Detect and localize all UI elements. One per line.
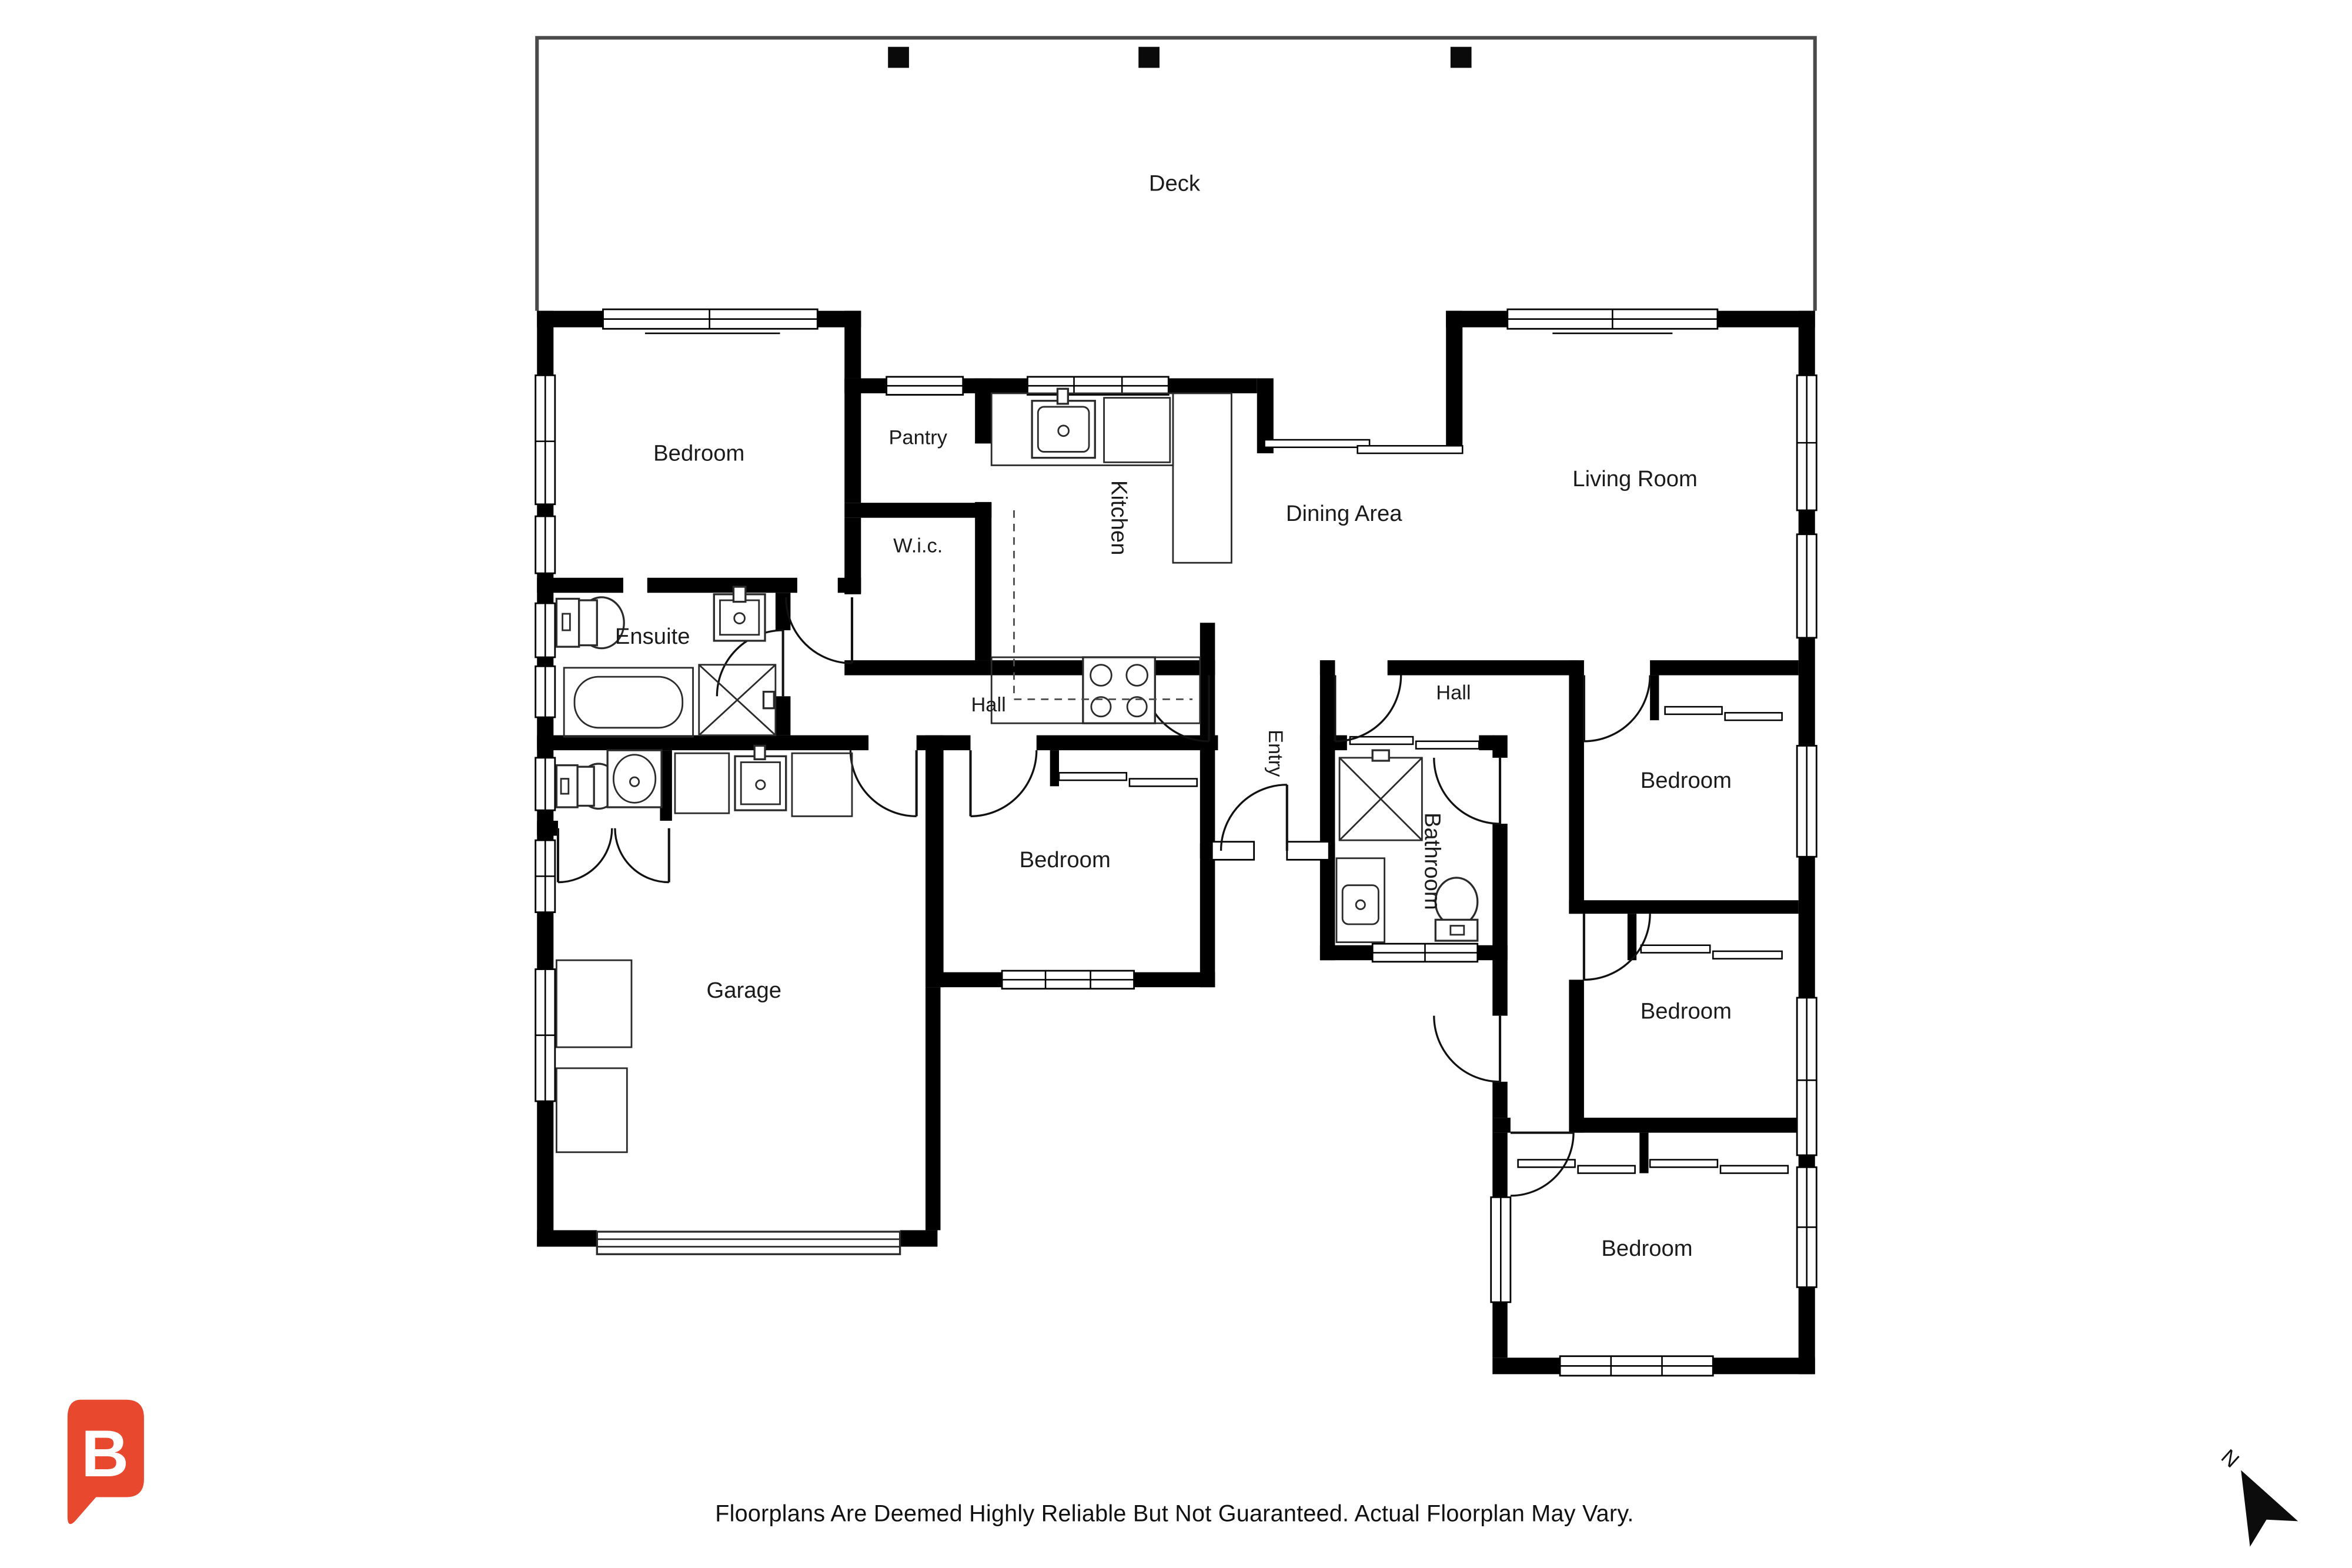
room-label-deck: Deck: [1149, 171, 1201, 196]
wall-segment: [1320, 735, 1347, 751]
deck-post: [888, 47, 909, 68]
deck-post: [1451, 47, 1472, 68]
wall-segment: [900, 1230, 938, 1246]
closet-door-panel: [1713, 951, 1782, 959]
room-label-pantry: Pantry: [888, 427, 947, 449]
closet-door-panel: [1720, 1166, 1788, 1174]
pocket-door-panel: [1350, 737, 1413, 744]
wall-segment: [537, 912, 553, 969]
wall-segment: [926, 987, 941, 1230]
wall-segment: [1492, 1358, 1560, 1374]
wall-segment: [844, 660, 1215, 676]
wall-segment: [844, 311, 861, 379]
room-label-bedroom-right-bottom: Bedroom: [1601, 1236, 1692, 1261]
wall-segment: [1799, 1155, 1815, 1167]
sliding-door-panel: [1358, 446, 1463, 453]
wall-segment: [844, 518, 861, 594]
brand-logo-icon: B: [68, 1400, 144, 1524]
wall-segment: [1492, 1082, 1508, 1118]
window: [1287, 842, 1329, 860]
wall-segment: [537, 504, 553, 516]
shower-head: [763, 692, 774, 708]
garage-fixtures: [556, 960, 632, 1152]
logo-letter: B: [81, 1416, 129, 1490]
deck-post: [1138, 47, 1160, 68]
closet-door-panel: [1725, 713, 1782, 720]
bathtub: [564, 668, 693, 737]
wall-segment: [1650, 676, 1659, 721]
wall-segment: [1200, 735, 1215, 988]
door-swing: [850, 750, 916, 816]
ensuite-fixtures: [556, 587, 775, 737]
wall-segment: [1492, 824, 1508, 1016]
room-label-kitchen: Kitchen: [1106, 480, 1131, 556]
wall-segment: [1628, 914, 1636, 960]
garage-storage: [556, 960, 632, 1047]
wall-segment: [1569, 660, 1584, 914]
wall-segment: [1388, 660, 1578, 676]
wall-segment: [1650, 660, 1799, 676]
door-swing: [1434, 1016, 1500, 1082]
wall-segment: [1639, 1133, 1648, 1174]
wall-segment: [1492, 735, 1508, 758]
wall-segment: [1573, 1118, 1799, 1133]
room-label-dining-area: Dining Area: [1286, 501, 1402, 526]
sink-faucet: [733, 587, 745, 602]
wall-segment: [926, 735, 944, 988]
window: [1212, 842, 1254, 860]
room-label-wic: W.i.c.: [893, 534, 943, 557]
wall-segment: [537, 1101, 553, 1246]
garage-door-panel: [597, 1232, 900, 1254]
wall-segment: [1799, 1287, 1815, 1374]
closet-door-panel: [1059, 773, 1127, 780]
sliding-door-panel: [1265, 440, 1370, 447]
wall-segment: [537, 821, 558, 836]
kitchen-sink: [1032, 401, 1095, 458]
wall-segment: [1799, 638, 1815, 746]
vanity: [607, 750, 661, 807]
wall-segment: [1479, 735, 1494, 751]
wall-segment: [926, 972, 1002, 988]
closet-door-panel: [1665, 707, 1722, 714]
toilet-seat: [579, 600, 597, 646]
laundry-sink: [735, 756, 786, 810]
toilet-tank: [556, 765, 577, 807]
wall-segment: [537, 657, 553, 666]
wall-segment: [1200, 623, 1215, 735]
wall-segment: [1569, 979, 1584, 1132]
kitchen-appliance: [1104, 398, 1170, 463]
toilet-tank: [1435, 920, 1477, 941]
room-label-hall-right: Hall: [1436, 681, 1471, 704]
wall-segment: [1492, 1302, 1508, 1358]
wall-segment: [1446, 311, 1508, 327]
wall-segment: [1799, 311, 1815, 376]
wall-segment: [844, 503, 991, 518]
room-label-bedroom-master: Bedroom: [653, 441, 744, 466]
wall-segment: [975, 503, 991, 660]
laundry-appliance: [675, 753, 729, 813]
toilet-tank: [556, 599, 579, 647]
front-door-swing: [1221, 785, 1287, 851]
north-arrow-icon: N: [2217, 1445, 2298, 1546]
wall-segment: [1799, 857, 1815, 998]
bathtub-basin: [574, 677, 683, 728]
kitchen-counter: [1173, 393, 1231, 563]
door-swing: [1335, 676, 1401, 741]
door-swing: [786, 597, 852, 663]
room-label-bathroom: Bathroom: [1419, 813, 1445, 910]
wall-segment: [963, 378, 1028, 393]
wall-segment: [648, 578, 797, 593]
room-label-bedroom-right-middle: Bedroom: [1641, 999, 1732, 1024]
wall-segment: [776, 696, 791, 735]
room-label-hall-left: Hall: [971, 694, 1005, 716]
wall-segment: [1320, 660, 1335, 960]
door-swing: [558, 828, 612, 882]
closet-door-panel: [1578, 1166, 1635, 1174]
wall-segment: [1037, 735, 1218, 751]
north-arrow: [2241, 1470, 2298, 1547]
room-label-bedroom-center: Bedroom: [1020, 847, 1111, 872]
bathroom-fixtures: [1337, 750, 1478, 942]
room-label-garage: Garage: [707, 978, 782, 1003]
wall-segment: [975, 378, 991, 443]
wall-segment: [1492, 1133, 1508, 1198]
door-swing: [971, 750, 1037, 816]
laundry-appliance: [792, 753, 852, 816]
door-swing: [615, 828, 669, 882]
north-label: N: [2217, 1445, 2244, 1472]
wall-segment: [1050, 750, 1059, 786]
room-label-entry: Entry: [1264, 730, 1287, 777]
toilet-seat: [577, 767, 594, 805]
closet-door-panel: [1650, 1160, 1718, 1168]
sink-faucet: [754, 745, 765, 759]
sink-basin: [1342, 885, 1378, 924]
room-label-ensuite: Ensuite: [615, 624, 690, 649]
shower-head: [1372, 750, 1389, 761]
door-swing: [1584, 914, 1650, 979]
wall-segment: [844, 378, 861, 503]
closet-door-panel: [1130, 779, 1197, 787]
closet-door-panel: [1641, 945, 1710, 953]
room-label-bedroom-right-top: Bedroom: [1641, 768, 1732, 793]
sink-drain: [1356, 900, 1365, 909]
door-swing: [1584, 676, 1650, 741]
wall-segment: [1320, 945, 1372, 961]
garage-storage: [556, 1068, 627, 1152]
pocket-door-panel: [1416, 741, 1479, 749]
wall-segment: [537, 1230, 597, 1246]
wall-segment: [1799, 510, 1815, 534]
garage-door: [597, 1232, 900, 1254]
wall-segment: [1200, 843, 1212, 858]
wall-segment: [537, 578, 622, 593]
wall-segment: [1168, 378, 1257, 393]
wall-segment: [1492, 1118, 1511, 1133]
wall-segment: [537, 311, 553, 376]
wall-segment: [1446, 311, 1462, 453]
wall-segment: [1569, 900, 1798, 914]
laundry-fixtures: [556, 745, 852, 816]
floorplan-canvas: Deck Bedroom Pantry W.i.c. Kitchen Dinin…: [0, 0, 2352, 1568]
kitchen-faucet: [1057, 389, 1068, 404]
room-label-living-room: Living Room: [1572, 466, 1698, 492]
disclaimer-text: Floorplans Are Deemed Highly Reliable Bu…: [715, 1500, 1633, 1526]
